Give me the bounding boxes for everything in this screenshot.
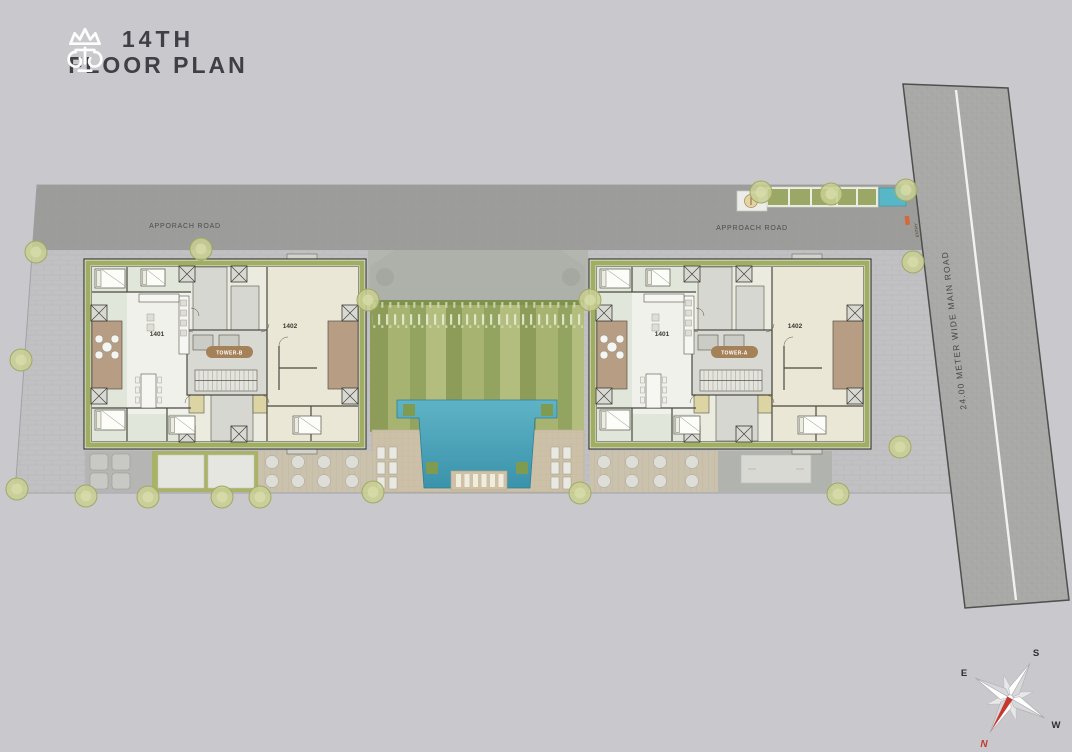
tower-a-unit-left-label: 1401 bbox=[655, 331, 670, 338]
tower-b-badge-label: TOWER-B bbox=[216, 351, 243, 357]
left-amenity-strip bbox=[85, 451, 375, 492]
floor-plan-page: 14TH FLOOR PLAN bbox=[0, 0, 1072, 752]
approach-road-right-label: APPROACH ROAD bbox=[716, 225, 788, 232]
compass-west-label: W bbox=[1052, 720, 1061, 731]
right-amenity-strip bbox=[590, 451, 832, 492]
approach-road-left-label: APPORACH ROAD bbox=[149, 223, 221, 230]
compass-east-label: E bbox=[961, 668, 967, 679]
pool-area bbox=[372, 400, 584, 492]
compass-north-label: N bbox=[980, 739, 988, 750]
dropoff-plaza bbox=[368, 250, 588, 302]
tower-a-badge-label: TOWER-A bbox=[721, 351, 748, 357]
compass-rose: S E W N bbox=[955, 643, 1064, 752]
tower-a-unit-right-label: 1402 bbox=[788, 323, 803, 330]
tower-b-unit-right-label: 1402 bbox=[283, 323, 298, 330]
dining-deck-right bbox=[590, 451, 718, 492]
tower-b-unit-left-label: 1401 bbox=[150, 331, 165, 338]
compass-south-label: S bbox=[1033, 648, 1039, 659]
site-plan: APPORACH ROAD APPROACH ROAD bbox=[0, 0, 1072, 752]
